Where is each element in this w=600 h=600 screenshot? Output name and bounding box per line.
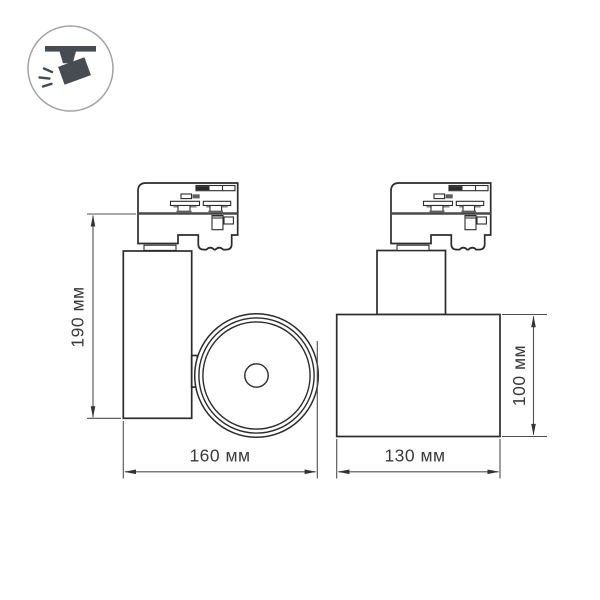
lamp-housing-side xyxy=(123,251,191,418)
product-dimension-drawing: 190 мм 160 мм 130 мм 100 мм xyxy=(0,0,600,600)
side-height-label: 190 мм xyxy=(68,286,88,347)
technical-drawing-canvas: 190 мм 160 мм 130 мм 100 мм xyxy=(0,0,600,600)
track-bar-icon xyxy=(45,46,96,52)
side-width-label: 160 мм xyxy=(189,446,250,466)
corner-badge xyxy=(28,26,113,111)
lamp-housing-front xyxy=(337,315,500,437)
front-height-label: 100 мм xyxy=(509,345,529,406)
lamp-neck-front xyxy=(377,251,446,315)
lens-outer-ring xyxy=(195,314,319,438)
light-ray-icon xyxy=(40,78,50,79)
front-width-label: 130 мм xyxy=(384,446,445,466)
